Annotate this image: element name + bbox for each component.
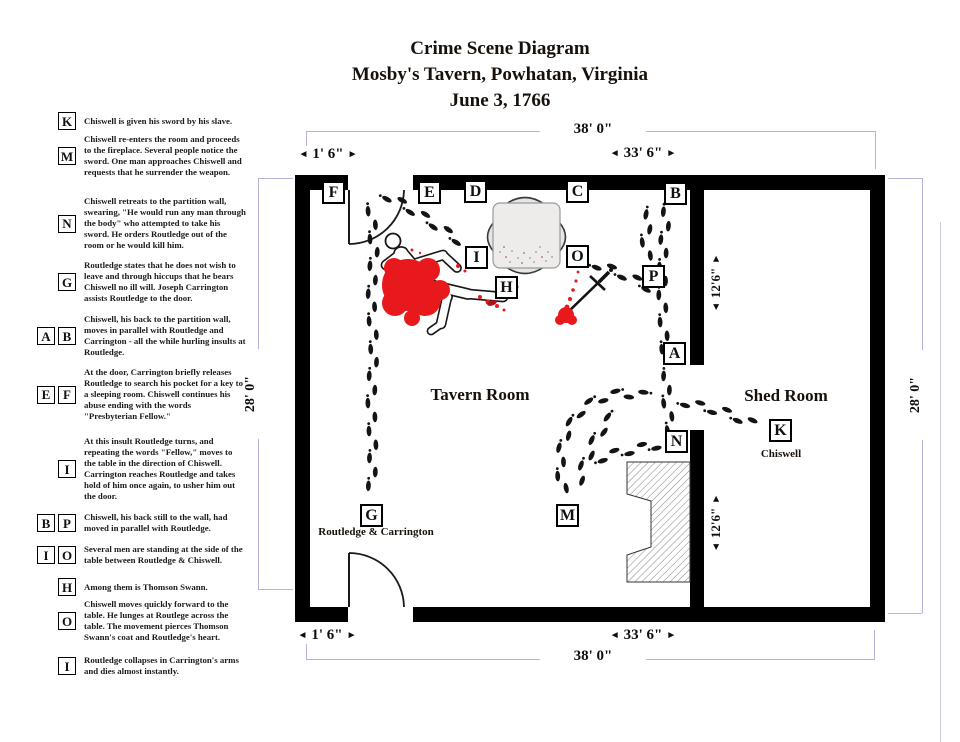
marker-I: I [465, 246, 488, 269]
footprint-trail-to-shed-k [676, 399, 758, 425]
footprint-heel-dot [663, 367, 666, 370]
crime-scene-diagram-page: Crime Scene Diagram Mosby's Tavern, Powh… [0, 0, 960, 742]
footprint [583, 396, 594, 406]
footprint [373, 219, 378, 230]
footprint [643, 209, 650, 220]
footprint [373, 439, 378, 450]
footprint [563, 482, 570, 493]
footprint-heel-dot [367, 285, 370, 288]
footprint-heel-dot [646, 206, 649, 209]
footprint [404, 208, 416, 218]
footprint [368, 344, 373, 355]
table-speckle [529, 257, 531, 259]
marker-K: K [769, 419, 792, 442]
footprint [576, 410, 587, 420]
footprint-heel-dot [648, 448, 651, 451]
footprint-heel-dot [449, 237, 452, 240]
table-speckle [535, 251, 537, 253]
footprint-heel-dot [367, 312, 370, 315]
footprint [624, 450, 635, 457]
footprint [598, 397, 609, 404]
footprint [366, 316, 371, 327]
footprint [661, 371, 666, 382]
footprint-trail-to-lower-door [365, 202, 380, 491]
footprint-heel-dot [367, 477, 370, 480]
footprint-heel-dot [621, 454, 624, 457]
footprint [679, 402, 690, 409]
footprint-heel-dot [556, 467, 559, 470]
marker-M: M [556, 504, 579, 527]
footprint [366, 370, 371, 381]
footprint [366, 426, 371, 437]
marker-N: N [665, 430, 688, 453]
footprint [367, 453, 372, 464]
footprint [374, 329, 379, 340]
footprint [427, 222, 438, 232]
footprint [721, 406, 733, 414]
door-arc-bottom [349, 553, 404, 607]
footprint-heel-dot [369, 340, 372, 343]
table-speckle [545, 260, 547, 262]
marker-F: F [322, 181, 345, 204]
marker-H: H [495, 276, 518, 299]
table-speckle [499, 251, 501, 253]
footprint [747, 416, 759, 425]
footprint [374, 357, 379, 368]
footprint-heel-dot [559, 439, 562, 442]
table-speckle [511, 250, 513, 252]
footprint [564, 416, 574, 428]
table-speckle [521, 262, 523, 264]
table-speckle [539, 246, 541, 248]
footprint [555, 471, 560, 482]
footprint-trail-a-to-n [661, 367, 675, 436]
footprint [597, 457, 609, 465]
footprint-heel-dot [572, 414, 575, 417]
footprint [664, 248, 669, 259]
footprint-heel-dot [403, 207, 406, 210]
footprint-heel-dot [621, 388, 624, 391]
footprint [366, 480, 371, 491]
footprint-heel-dot [367, 422, 370, 425]
footprint [561, 457, 566, 468]
footprint-heel-dot [593, 432, 596, 435]
table-speckle [533, 261, 535, 263]
footprint [669, 411, 675, 422]
fireplace [627, 462, 690, 582]
footprint-heel-dot [366, 202, 369, 205]
footprint-trail-chiswell-wall-b-to-p [639, 206, 653, 261]
footprint [623, 394, 634, 400]
footprint [647, 250, 653, 261]
table-speckle [505, 256, 507, 258]
footprint-heel-dot [369, 449, 372, 452]
marker-O: O [566, 245, 589, 268]
footprint [373, 275, 378, 286]
footprint-heel-dot [640, 234, 643, 237]
marker-D: D [464, 180, 487, 203]
footprint-heel-dot [369, 257, 372, 260]
marker-B: B [664, 182, 687, 205]
footprint [555, 442, 562, 453]
footprint [602, 411, 612, 422]
footprint-heel-dot [650, 392, 653, 395]
footprint [365, 206, 370, 217]
footprint-heel-dot [366, 394, 369, 397]
table-speckle [551, 256, 553, 258]
footprint [663, 302, 668, 313]
footprint-heel-dot [426, 221, 429, 224]
footprint [609, 447, 621, 455]
marker-E: E [418, 181, 441, 204]
footprint-heel-dot [661, 395, 664, 398]
table-speckle [541, 256, 543, 258]
table [493, 203, 560, 268]
footprint [636, 441, 647, 448]
marker-G: G [360, 504, 383, 527]
footprint-heel-dot [611, 410, 614, 413]
footprint [420, 210, 432, 220]
footprint [381, 195, 393, 204]
footprint [647, 224, 654, 235]
floor-plan-canvas [0, 0, 960, 742]
footprint [365, 398, 370, 409]
footprint [367, 234, 372, 245]
footprint [365, 288, 370, 299]
table-speckle [503, 246, 505, 248]
footprint [732, 417, 744, 425]
table-speckle [547, 251, 549, 253]
footprint [610, 388, 621, 395]
footprint-heel-dot [594, 461, 597, 464]
footprint-heel-dot [658, 313, 661, 316]
footprint [656, 290, 661, 301]
footprint-heel-dot [593, 395, 596, 398]
footprint-heel-dot [379, 194, 382, 197]
footprint-heel-dot [658, 258, 661, 261]
footprint [372, 385, 377, 396]
footprint-heel-dot [638, 285, 641, 288]
footprint [661, 206, 667, 217]
footprint-trail-inner-arc-to-m [577, 410, 614, 487]
table-speckle [523, 252, 525, 254]
footprint [638, 389, 649, 395]
footprint [587, 434, 596, 446]
footprint [367, 260, 372, 271]
footprint [374, 247, 379, 258]
marker-C: C [566, 180, 589, 203]
footprint [661, 398, 667, 409]
footprint [443, 225, 454, 235]
footprint [578, 475, 586, 487]
marker-A: A [663, 342, 686, 365]
marker-P: P [642, 265, 665, 288]
table-speckle [517, 257, 519, 259]
footprint [694, 399, 705, 406]
footprint-heel-dot [660, 231, 663, 234]
footprint [591, 264, 603, 272]
footprint [565, 430, 572, 441]
footprint-heel-dot [368, 367, 371, 370]
footprint [373, 467, 378, 478]
footprint [616, 273, 628, 282]
blood-drips [555, 271, 579, 325]
footprint [651, 445, 662, 452]
footprint-trail-to-n-door [594, 441, 662, 464]
footprint-heel-dot [703, 409, 706, 412]
table-speckle [509, 261, 511, 263]
footprint [667, 385, 672, 396]
footprint [450, 238, 462, 248]
footprint [657, 317, 662, 328]
footprint [577, 460, 585, 472]
footprint-heel-dot [614, 273, 617, 276]
footprint [666, 221, 672, 232]
footprint [706, 409, 717, 416]
footprint-heel-dot [368, 230, 371, 233]
footprint-heel-dot [582, 457, 585, 460]
footprint [658, 234, 664, 245]
footprint [587, 450, 596, 462]
footprint-heel-dot [676, 402, 679, 405]
footprint [372, 412, 377, 423]
footprint [664, 330, 669, 341]
footprint [372, 301, 377, 312]
footprint [639, 237, 645, 248]
footprint [599, 426, 609, 437]
footprint-heel-dot [665, 422, 668, 425]
footprint-heel-dot [729, 417, 732, 420]
